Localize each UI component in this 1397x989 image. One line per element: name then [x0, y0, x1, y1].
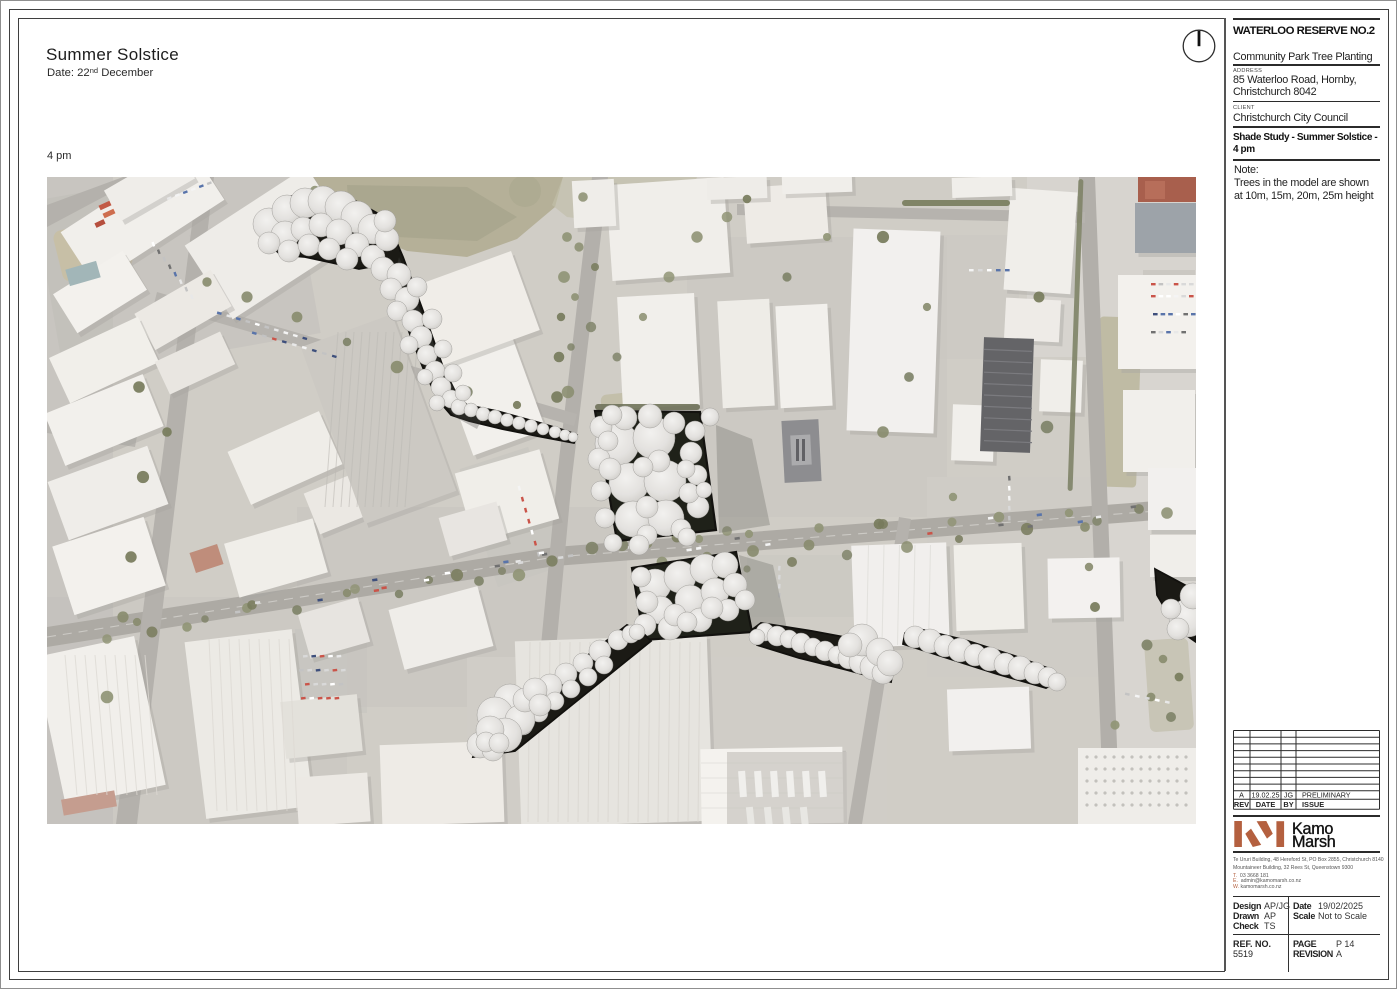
svg-text:DATE: DATE	[1256, 800, 1276, 809]
svg-text:REV: REV	[1234, 800, 1249, 809]
svg-text:A: A	[1239, 790, 1244, 799]
svg-text:JG: JG	[1284, 790, 1294, 799]
svg-text:Marsh: Marsh	[1292, 833, 1335, 849]
svg-text:ISSUE: ISSUE	[1302, 800, 1324, 809]
svg-text:PRELIMINARY: PRELIMINARY	[1302, 790, 1351, 799]
svg-text:19.02.25: 19.02.25	[1252, 790, 1280, 799]
svg-text:BY: BY	[1283, 800, 1293, 809]
